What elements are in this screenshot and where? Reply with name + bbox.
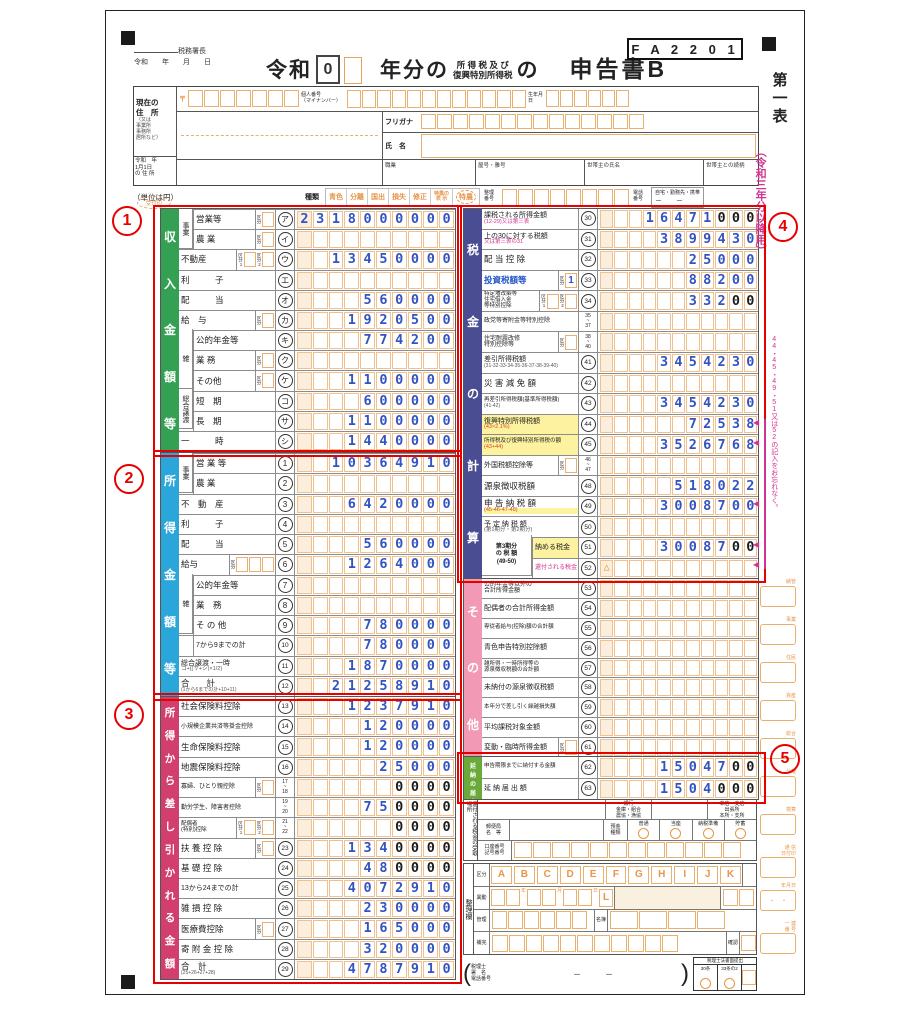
digit-cell[interactable] xyxy=(297,393,312,410)
digit-cell[interactable] xyxy=(629,620,642,637)
digit-cell[interactable] xyxy=(657,660,670,677)
digit-cell[interactable] xyxy=(643,436,656,454)
digit-cell[interactable]: 0 xyxy=(715,780,728,799)
digit-cell[interactable] xyxy=(701,313,714,331)
digit-cell[interactable] xyxy=(297,251,312,268)
digit-cell[interactable]: 3 xyxy=(376,698,391,715)
digit-cell[interactable]: 9 xyxy=(360,312,375,329)
digit-cell[interactable] xyxy=(657,580,670,597)
digit-cell[interactable] xyxy=(715,313,728,331)
digit-cell[interactable] xyxy=(744,600,757,617)
digit-cell[interactable]: 0 xyxy=(392,658,407,675)
digit-cell[interactable]: 8 xyxy=(701,477,714,495)
digit-cell[interactable] xyxy=(600,660,613,677)
digit-cell[interactable] xyxy=(629,580,642,597)
digit-cell[interactable] xyxy=(701,620,714,637)
input-box[interactable] xyxy=(741,935,756,951)
digit-cell[interactable] xyxy=(643,375,656,393)
digit-cell[interactable]: 2 xyxy=(360,556,375,573)
digit-cell[interactable]: 0 xyxy=(392,860,407,877)
kubun-letter-box[interactable]: D xyxy=(560,866,581,884)
input-box[interactable] xyxy=(534,189,549,206)
digit-cell[interactable]: 7 xyxy=(392,961,407,978)
digit-cell[interactable]: 0 xyxy=(392,718,407,735)
digit-cell[interactable] xyxy=(297,920,312,937)
digit-cell[interactable]: 3 xyxy=(701,292,714,310)
digit-cell[interactable]: 4 xyxy=(376,433,391,450)
kubun-box[interactable] xyxy=(262,313,274,328)
digit-cell[interactable]: 8 xyxy=(376,961,391,978)
digit-cell[interactable] xyxy=(600,739,613,756)
input-box[interactable] xyxy=(268,90,283,107)
digit-cell[interactable]: 0 xyxy=(408,496,423,513)
input-box[interactable] xyxy=(582,189,597,206)
digit-cell[interactable] xyxy=(313,393,328,410)
input-box[interactable] xyxy=(501,114,516,129)
digit-cell[interactable] xyxy=(729,518,742,536)
digit-cell[interactable]: 0 xyxy=(408,819,423,836)
digit-cell[interactable]: △ xyxy=(600,560,613,578)
digit-cell[interactable]: 0 xyxy=(423,433,438,450)
branch-name-entry[interactable] xyxy=(652,800,708,819)
digit-cell[interactable]: 8 xyxy=(376,860,391,877)
digit-cell[interactable] xyxy=(297,678,312,695)
input-box[interactable] xyxy=(560,90,573,107)
digit-cell[interactable]: 8 xyxy=(701,539,714,557)
digit-cell[interactable] xyxy=(600,395,613,413)
digit-cell[interactable] xyxy=(313,272,328,289)
digit-cell[interactable] xyxy=(715,660,728,677)
digit-cell[interactable]: 5 xyxy=(672,477,685,495)
digit-cell[interactable]: 2 xyxy=(360,900,375,917)
digit-cell[interactable] xyxy=(715,560,728,578)
digit-cell[interactable]: 4 xyxy=(360,251,375,268)
digit-cell[interactable] xyxy=(376,597,391,614)
digit-cell[interactable]: 0 xyxy=(686,539,699,557)
digit-cell[interactable]: 0 xyxy=(439,496,454,513)
digit-cell[interactable] xyxy=(701,719,714,736)
digit-cell[interactable] xyxy=(297,617,312,634)
digit-cell[interactable] xyxy=(614,272,627,290)
digit-cell[interactable] xyxy=(439,475,454,492)
digit-cell[interactable]: 0 xyxy=(376,413,391,430)
digit-cell[interactable] xyxy=(672,251,685,269)
digit-cell[interactable]: 4 xyxy=(360,860,375,877)
digit-cell[interactable] xyxy=(600,539,613,557)
digit-cell[interactable] xyxy=(614,457,627,475)
digit-cell[interactable]: 5 xyxy=(672,436,685,454)
input-box[interactable] xyxy=(550,189,565,206)
digit-cell[interactable]: 0 xyxy=(729,272,742,290)
digit-cell[interactable] xyxy=(701,457,714,475)
relation-cell[interactable]: 世帯主との続柄 xyxy=(704,160,758,185)
digit-cell[interactable]: 1 xyxy=(329,211,344,228)
digit-cell[interactable] xyxy=(600,518,613,536)
digit-cell[interactable] xyxy=(600,375,613,393)
input-box[interactable] xyxy=(220,90,235,107)
digit-cell[interactable]: 0 xyxy=(423,251,438,268)
digit-cell[interactable] xyxy=(715,600,728,617)
digit-cell[interactable] xyxy=(376,779,391,796)
digit-cell[interactable] xyxy=(408,231,423,248)
digit-cell[interactable] xyxy=(686,313,699,331)
digit-cell[interactable] xyxy=(376,475,391,492)
digit-cell[interactable] xyxy=(729,600,742,617)
digit-cell[interactable]: 0 xyxy=(423,393,438,410)
digit-cell[interactable] xyxy=(329,413,344,430)
digit-cell[interactable] xyxy=(423,577,438,594)
digit-cell[interactable] xyxy=(614,518,627,536)
digit-cell[interactable] xyxy=(672,600,685,617)
digit-cell[interactable]: 0 xyxy=(423,617,438,634)
digit-cell[interactable] xyxy=(329,433,344,450)
digit-cell[interactable] xyxy=(344,759,359,776)
input-box[interactable] xyxy=(188,90,203,107)
digit-cell[interactable] xyxy=(329,292,344,309)
margin-box-field[interactable] xyxy=(760,814,796,835)
digit-cell[interactable] xyxy=(629,375,642,393)
digit-cell[interactable] xyxy=(672,719,685,736)
digit-cell[interactable]: 3 xyxy=(729,354,742,372)
input-box[interactable] xyxy=(647,842,665,858)
digit-cell[interactable] xyxy=(297,718,312,735)
digit-cell[interactable]: 1 xyxy=(423,455,438,472)
digit-cell[interactable]: 9 xyxy=(408,455,423,472)
digit-cell[interactable]: 7 xyxy=(392,698,407,715)
digit-cell[interactable]: 1 xyxy=(344,698,359,715)
digit-cell[interactable]: 9 xyxy=(408,698,423,715)
digit-cell[interactable] xyxy=(392,577,407,594)
digit-cell[interactable]: 1 xyxy=(657,758,670,777)
digit-cell[interactable] xyxy=(297,900,312,917)
digit-cell[interactable]: 0 xyxy=(392,779,407,796)
digit-cell[interactable] xyxy=(715,333,728,351)
digit-cell[interactable]: 0 xyxy=(715,251,728,269)
digit-cell[interactable] xyxy=(360,475,375,492)
digit-cell[interactable] xyxy=(715,518,728,536)
digit-cell[interactable]: 4 xyxy=(392,556,407,573)
digit-cell[interactable]: 1 xyxy=(344,556,359,573)
digit-cell[interactable] xyxy=(629,395,642,413)
digit-cell[interactable] xyxy=(643,780,656,799)
digit-cell[interactable] xyxy=(629,539,642,557)
digit-cell[interactable] xyxy=(439,231,454,248)
digit-cell[interactable] xyxy=(729,560,742,578)
digit-cell[interactable]: 1 xyxy=(344,840,359,857)
digit-cell[interactable] xyxy=(297,799,312,816)
digit-cell[interactable]: 0 xyxy=(408,413,423,430)
input-box[interactable] xyxy=(469,114,484,129)
digit-cell[interactable]: 0 xyxy=(360,880,375,897)
input-box[interactable] xyxy=(549,114,564,129)
digit-cell[interactable] xyxy=(715,679,728,696)
digit-cell[interactable] xyxy=(686,640,699,657)
digit-cell[interactable]: 0 xyxy=(744,780,757,799)
digit-cell[interactable]: 1 xyxy=(360,738,375,755)
digit-cell[interactable]: 7 xyxy=(715,539,728,557)
digit-cell[interactable] xyxy=(360,352,375,369)
input-box[interactable] xyxy=(577,935,593,952)
digit-cell[interactable] xyxy=(376,516,391,533)
digit-cell[interactable] xyxy=(629,660,642,677)
digit-cell[interactable] xyxy=(360,597,375,614)
digit-cell[interactable] xyxy=(701,600,714,617)
digit-cell[interactable] xyxy=(360,272,375,289)
digit-cell[interactable]: 0 xyxy=(423,536,438,553)
digit-cell[interactable] xyxy=(329,920,344,937)
digit-cell[interactable] xyxy=(313,312,328,329)
margin-box-field[interactable] xyxy=(760,700,796,721)
input-box[interactable] xyxy=(527,889,541,906)
digit-cell[interactable]: 0 xyxy=(715,210,728,228)
digit-cell[interactable] xyxy=(629,477,642,495)
digit-cell[interactable]: 0 xyxy=(439,880,454,897)
digit-cell[interactable]: 7 xyxy=(360,637,375,654)
input-box[interactable] xyxy=(509,935,525,952)
digit-cell[interactable]: 0 xyxy=(439,860,454,877)
digit-cell[interactable]: 5 xyxy=(360,292,375,309)
digit-cell[interactable] xyxy=(344,738,359,755)
digit-cell[interactable]: 0 xyxy=(376,211,391,228)
digit-cell[interactable] xyxy=(423,272,438,289)
input-box[interactable] xyxy=(614,189,629,206)
digit-cell[interactable] xyxy=(344,637,359,654)
digit-cell[interactable] xyxy=(600,477,613,495)
digit-cell[interactable]: 0 xyxy=(423,779,438,796)
digit-cell[interactable]: 6 xyxy=(701,436,714,454)
digit-cell[interactable] xyxy=(600,699,613,716)
digit-cell[interactable] xyxy=(729,457,742,475)
digit-cell[interactable] xyxy=(686,333,699,351)
digit-cell[interactable] xyxy=(729,640,742,657)
digit-cell[interactable]: 1 xyxy=(344,372,359,389)
margin-box-field[interactable] xyxy=(760,624,796,645)
digit-cell[interactable] xyxy=(313,961,328,978)
digit-cell[interactable]: 2 xyxy=(329,678,344,695)
digit-cell[interactable] xyxy=(313,332,328,349)
digit-cell[interactable]: 0 xyxy=(744,354,757,372)
digit-cell[interactable]: 1 xyxy=(423,880,438,897)
digit-cell[interactable]: 0 xyxy=(423,819,438,836)
digit-cell[interactable] xyxy=(643,313,656,331)
digit-cell[interactable] xyxy=(297,496,312,513)
digit-cell[interactable] xyxy=(344,577,359,594)
kubun-letter-box[interactable]: E xyxy=(583,866,604,884)
digit-cell[interactable] xyxy=(643,333,656,351)
digit-cell[interactable] xyxy=(614,539,627,557)
digit-cell[interactable]: 0 xyxy=(408,779,423,796)
digit-cell[interactable]: 1 xyxy=(344,678,359,695)
digit-cell[interactable]: 0 xyxy=(392,312,407,329)
digit-cell[interactable] xyxy=(329,860,344,877)
digit-cell[interactable]: 0 xyxy=(439,658,454,675)
digit-cell[interactable] xyxy=(715,640,728,657)
digit-cell[interactable]: 0 xyxy=(408,433,423,450)
digit-cell[interactable]: 0 xyxy=(439,413,454,430)
digit-cell[interactable]: 1 xyxy=(686,477,699,495)
digit-cell[interactable] xyxy=(657,679,670,696)
digit-cell[interactable]: 1 xyxy=(701,210,714,228)
input-box[interactable] xyxy=(704,842,722,858)
input-box[interactable] xyxy=(502,189,517,206)
digit-cell[interactable] xyxy=(643,395,656,413)
digit-cell[interactable]: 5 xyxy=(686,354,699,372)
kubun-box[interactable] xyxy=(547,294,559,309)
margin-box-field[interactable] xyxy=(760,662,796,683)
digit-cell[interactable] xyxy=(329,352,344,369)
digit-cell[interactable] xyxy=(600,758,613,777)
digit-cell[interactable] xyxy=(672,620,685,637)
digit-cell[interactable] xyxy=(329,880,344,897)
input-box[interactable] xyxy=(514,842,532,858)
digit-cell[interactable] xyxy=(643,600,656,617)
digit-cell[interactable]: 0 xyxy=(408,536,423,553)
digit-cell[interactable]: 0 xyxy=(439,961,454,978)
digit-cell[interactable]: 0 xyxy=(423,658,438,675)
digit-cell[interactable] xyxy=(329,496,344,513)
digit-cell[interactable] xyxy=(600,313,613,331)
digit-cell[interactable]: 4 xyxy=(672,354,685,372)
digit-cell[interactable]: 0 xyxy=(439,211,454,228)
digit-cell[interactable] xyxy=(313,413,328,430)
digit-cell[interactable] xyxy=(614,739,627,756)
digit-cell[interactable] xyxy=(600,436,613,454)
digit-cell[interactable] xyxy=(701,560,714,578)
digit-cell[interactable]: 2 xyxy=(376,718,391,735)
digit-cell[interactable] xyxy=(297,819,312,836)
digit-cell[interactable] xyxy=(313,759,328,776)
digit-cell[interactable] xyxy=(729,679,742,696)
digit-cell[interactable] xyxy=(686,560,699,578)
digit-cell[interactable] xyxy=(614,660,627,677)
digit-cell[interactable] xyxy=(297,292,312,309)
digit-cell[interactable] xyxy=(629,518,642,536)
digit-cell[interactable] xyxy=(313,475,328,492)
digit-cell[interactable] xyxy=(313,251,328,268)
digit-cell[interactable]: 3 xyxy=(657,498,670,516)
digit-cell[interactable]: 4 xyxy=(360,496,375,513)
digit-cell[interactable]: 8 xyxy=(686,272,699,290)
digit-cell[interactable]: 0 xyxy=(729,539,742,557)
digit-cell[interactable]: 0 xyxy=(392,211,407,228)
kubun-letter-box[interactable]: K xyxy=(720,866,741,884)
digit-cell[interactable]: 7 xyxy=(686,416,699,434)
digit-cell[interactable]: 0 xyxy=(392,413,407,430)
digit-cell[interactable] xyxy=(297,536,312,553)
digit-cell[interactable] xyxy=(600,210,613,228)
digit-cell[interactable] xyxy=(643,679,656,696)
digit-cell[interactable] xyxy=(297,738,312,755)
digit-cell[interactable] xyxy=(344,819,359,836)
input-box[interactable] xyxy=(482,90,496,108)
digit-cell[interactable] xyxy=(643,292,656,310)
input-box[interactable] xyxy=(204,90,219,107)
digit-cell[interactable]: 0 xyxy=(439,332,454,349)
digit-cell[interactable]: 0 xyxy=(408,738,423,755)
digit-cell[interactable]: 2 xyxy=(744,477,757,495)
input-box[interactable] xyxy=(560,935,576,952)
input-box[interactable] xyxy=(668,911,696,929)
digit-cell[interactable]: 2 xyxy=(297,211,312,228)
digit-cell[interactable]: 0 xyxy=(376,372,391,389)
input-box[interactable] xyxy=(588,90,601,107)
digit-cell[interactable]: 6 xyxy=(360,393,375,410)
digit-cell[interactable]: 5 xyxy=(408,312,423,329)
input-box[interactable] xyxy=(597,114,612,129)
digit-cell[interactable] xyxy=(329,372,344,389)
digit-cell[interactable] xyxy=(701,580,714,597)
digit-cell[interactable]: 0 xyxy=(439,312,454,329)
digit-cell[interactable]: 2 xyxy=(729,477,742,495)
digit-cell[interactable]: 0 xyxy=(672,498,685,516)
digit-cell[interactable] xyxy=(643,660,656,677)
kubun-box[interactable] xyxy=(262,373,274,388)
digit-cell[interactable]: 6 xyxy=(376,536,391,553)
digit-cell[interactable]: 1 xyxy=(423,698,438,715)
digit-cell[interactable] xyxy=(329,819,344,836)
input-box[interactable] xyxy=(666,842,684,858)
kubun-letter-box[interactable]: J xyxy=(697,866,718,884)
era-year-box[interactable]: 0 xyxy=(316,55,340,84)
digit-cell[interactable] xyxy=(744,679,757,696)
kubun-box[interactable] xyxy=(236,557,248,572)
input-box[interactable] xyxy=(421,114,436,129)
digit-cell[interactable] xyxy=(629,739,642,756)
digit-cell[interactable] xyxy=(715,620,728,637)
digit-cell[interactable]: 0 xyxy=(423,332,438,349)
kubun-box[interactable] xyxy=(565,335,577,350)
digit-cell[interactable]: 2 xyxy=(392,880,407,897)
digit-cell[interactable] xyxy=(629,354,642,372)
digit-cell[interactable]: 3 xyxy=(344,251,359,268)
digit-cell[interactable] xyxy=(672,560,685,578)
input-box[interactable] xyxy=(594,935,610,952)
digit-cell[interactable] xyxy=(439,577,454,594)
digit-cell[interactable]: 0 xyxy=(392,738,407,755)
digit-cell[interactable] xyxy=(344,900,359,917)
law-33-cell[interactable]: 33条の2 xyxy=(718,965,742,990)
digit-cell[interactable] xyxy=(408,475,423,492)
phone-cell[interactable]: 自宅・勤務先・携帯 － － xyxy=(651,187,704,208)
digit-cell[interactable]: 0 xyxy=(408,941,423,958)
input-box[interactable] xyxy=(422,90,436,108)
digit-cell[interactable]: 0 xyxy=(439,251,454,268)
input-box[interactable] xyxy=(723,889,738,906)
digit-cell[interactable]: 4 xyxy=(360,433,375,450)
input-box[interactable] xyxy=(565,114,580,129)
digit-cell[interactable] xyxy=(686,739,699,756)
digit-cell[interactable]: 0 xyxy=(392,617,407,634)
digit-cell[interactable] xyxy=(657,292,670,310)
digit-cell[interactable]: 0 xyxy=(715,477,728,495)
digit-cell[interactable] xyxy=(360,516,375,533)
digit-cell[interactable] xyxy=(643,758,656,777)
kubun-letter-box[interactable]: G xyxy=(628,866,649,884)
digit-cell[interactable] xyxy=(701,375,714,393)
digit-cell[interactable] xyxy=(643,457,656,475)
digit-cell[interactable]: 2 xyxy=(715,395,728,413)
digit-cell[interactable] xyxy=(600,620,613,637)
kubun-box[interactable] xyxy=(244,252,256,267)
digit-cell[interactable] xyxy=(297,231,312,248)
digit-cell[interactable]: 0 xyxy=(686,498,699,516)
digit-cell[interactable] xyxy=(672,292,685,310)
digit-cell[interactable]: 0 xyxy=(392,637,407,654)
margin-box-field[interactable] xyxy=(760,586,796,607)
digit-cell[interactable]: 2 xyxy=(715,272,728,290)
digit-cell[interactable] xyxy=(329,738,344,755)
digit-cell[interactable]: 4 xyxy=(701,780,714,799)
